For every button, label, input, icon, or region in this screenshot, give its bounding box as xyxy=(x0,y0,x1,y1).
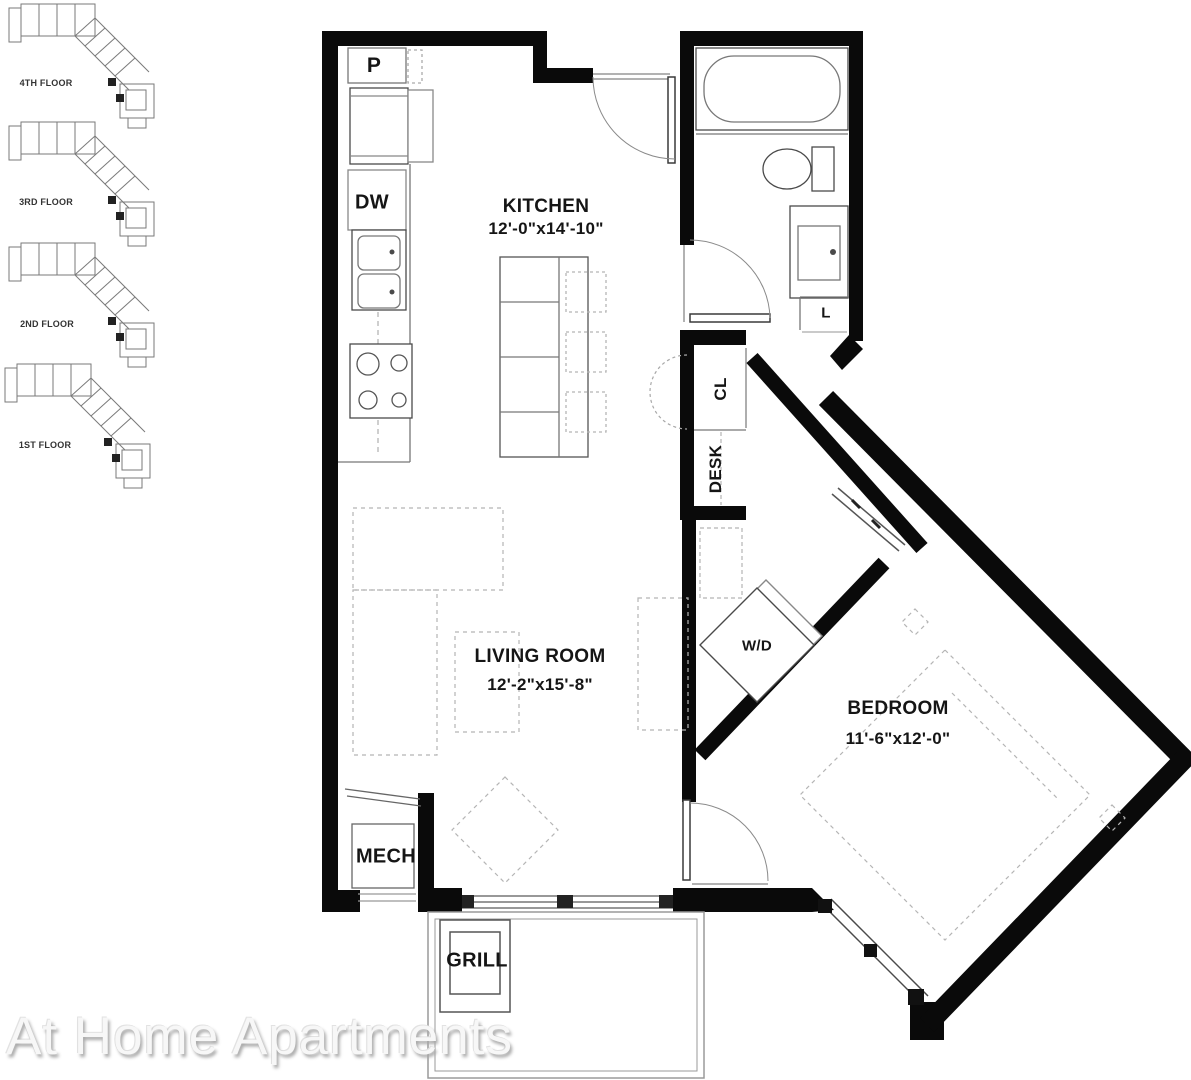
closet-label: CL xyxy=(711,377,731,400)
floorplan-page: 4TH FLOOR 3RD FLOOR 2ND FLOOR 1ST FLOOR … xyxy=(0,0,1191,1080)
pantry xyxy=(348,48,422,83)
kitchen-island xyxy=(500,257,588,457)
floor-locator-3rd xyxy=(9,122,154,246)
desk-label: DESK xyxy=(706,445,726,493)
walls xyxy=(322,31,944,1040)
bedroom-dims: 11'-6"x12'-0" xyxy=(846,729,951,749)
kitchen-fixtures xyxy=(338,48,606,462)
kitchen-name: KITCHEN xyxy=(503,196,590,218)
floor-label-2nd: 2ND FLOOR xyxy=(20,319,74,329)
washer-dryer-label: W/D xyxy=(742,638,772,655)
desk-chair-dashed xyxy=(700,528,742,598)
bathtub xyxy=(696,48,848,134)
living-room-name: LIVING ROOM xyxy=(474,646,605,668)
bedroom-door xyxy=(683,800,768,884)
entry-door xyxy=(593,74,675,163)
floor-locator-1st xyxy=(5,364,150,488)
bedroom-window xyxy=(818,899,928,1005)
grill-label: GRILL xyxy=(446,950,508,973)
mech-label: MECH xyxy=(356,846,416,869)
sofa-top xyxy=(353,508,503,590)
vanity-sink xyxy=(790,206,848,298)
floor-locator-4th xyxy=(9,4,154,128)
refrigerator xyxy=(350,88,433,164)
kitchen-dims: 12'-0"x14'-10" xyxy=(488,219,603,239)
kitchen-sink xyxy=(352,230,406,310)
watermark-text: At Home Apartments xyxy=(6,1006,513,1067)
floor-label-1st: 1ST FLOOR xyxy=(19,440,71,450)
pantry-label: P xyxy=(367,54,381,78)
toilet xyxy=(763,147,834,191)
living-room-furniture-dashed xyxy=(353,508,688,883)
nightstand-left xyxy=(902,609,928,635)
linen-label: L xyxy=(821,305,830,322)
pillow-line xyxy=(952,693,1058,799)
sofa-side xyxy=(353,590,437,755)
media-console xyxy=(638,598,688,730)
accent-chair xyxy=(452,777,558,883)
range-stove xyxy=(350,344,412,418)
floor-label-4th: 4TH FLOOR xyxy=(20,78,73,88)
floorplan-drawing xyxy=(0,0,1191,1080)
patio-sliding-door xyxy=(462,895,673,908)
dishwasher-label: DW xyxy=(355,192,389,215)
floor-label-3rd: 3RD FLOOR xyxy=(19,197,73,207)
living-room-dims: 12'-2"x15'-8" xyxy=(487,675,593,695)
bathroom-door xyxy=(684,240,770,322)
diagonal-walls xyxy=(700,358,1191,1025)
bathroom-fixtures xyxy=(696,48,849,332)
bedroom-name: BEDROOM xyxy=(847,698,948,720)
floor-locator-2nd xyxy=(9,243,154,367)
